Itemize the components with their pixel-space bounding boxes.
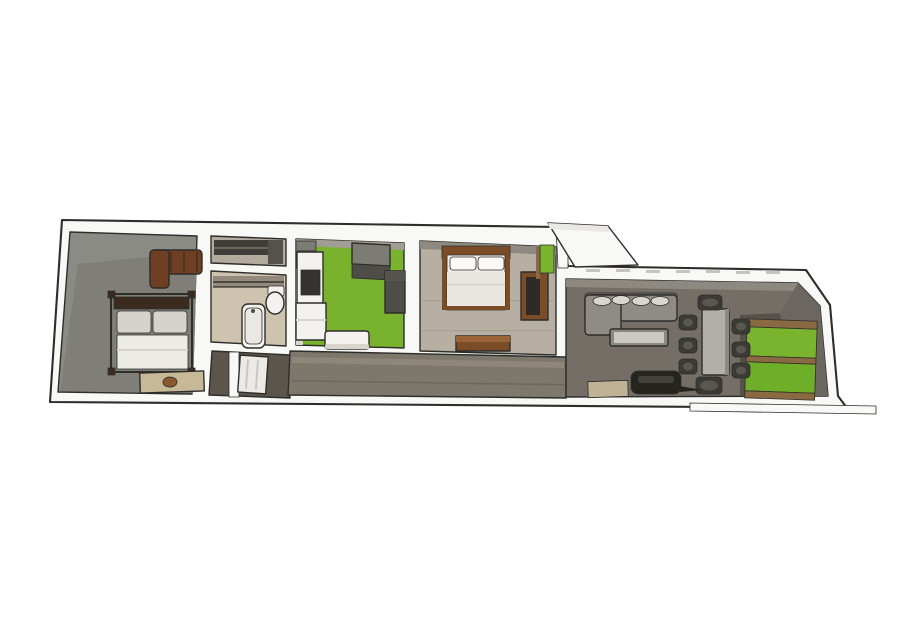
kitchen-white-cabinet [296, 303, 326, 340]
bed2-pillow [478, 257, 504, 270]
leather-sofa-chaise [150, 250, 169, 288]
bedroom-bench-top [456, 336, 510, 342]
bed2-rail [505, 257, 510, 310]
bed-post [108, 368, 115, 375]
kitchen-tall-unit-top [385, 271, 405, 281]
cooktop [301, 270, 320, 295]
chair-seat [683, 319, 693, 327]
chair-seat [702, 299, 718, 307]
corridor [288, 351, 566, 398]
master-bench [140, 371, 205, 393]
chair-seat [700, 381, 718, 391]
skylight-dash [676, 270, 690, 273]
bed-pillow [117, 311, 151, 333]
dining-table-side [725, 309, 729, 375]
skylight-dash [616, 269, 630, 272]
room-master-bedroom [58, 232, 204, 394]
green-end-windows [745, 319, 818, 400]
toilet [266, 292, 284, 314]
wardrobe-panel [526, 277, 540, 315]
doormat [588, 380, 629, 397]
dining-table [702, 309, 729, 375]
chair-seat [683, 363, 693, 371]
sofa-tuft [183, 252, 185, 272]
refrigerator-top [352, 243, 390, 266]
entry-hall [209, 351, 290, 398]
fireplace-inner [638, 376, 674, 383]
bathtub-drain [251, 309, 255, 313]
kitchen-table-shadow [325, 344, 369, 349]
green-window [746, 327, 817, 358]
bedroom-plank-line [422, 330, 554, 331]
doormat-group [588, 380, 629, 397]
chair-seat [736, 346, 746, 354]
skylight-dash [766, 271, 780, 274]
sofa-tuft [196, 252, 198, 272]
skylight-dash [706, 270, 720, 273]
green-door [540, 245, 554, 273]
green-window [745, 362, 816, 393]
bathroom-rail [213, 281, 284, 283]
bathtub-basin [245, 308, 262, 344]
floorplan-rendering [0, 0, 900, 636]
sofa-cushion [593, 297, 611, 306]
entry-door [238, 355, 269, 394]
sofa-cushion [632, 297, 650, 306]
skylight-dash [736, 271, 750, 274]
bed-headboard [114, 297, 189, 309]
room-kitchen [296, 239, 405, 349]
kitchen-cabinet-line [296, 319, 326, 321]
entry-door-panel [238, 355, 269, 394]
chair-seat [683, 342, 693, 350]
bed2-pillow [450, 257, 476, 270]
room-living-dining [566, 269, 828, 400]
chair-seat [736, 367, 746, 375]
bed-duvet-fold [117, 349, 188, 351]
bed2-duvet-fold [447, 284, 505, 286]
skylight-dash [586, 269, 600, 272]
sofa-tuft [170, 252, 172, 272]
closet-side-return [268, 240, 283, 264]
bed2-footboard [442, 306, 510, 310]
bed-pillow [153, 311, 187, 333]
bed-post [108, 291, 115, 298]
room-bathroom [211, 271, 286, 348]
bench-bowl [163, 377, 177, 387]
room-bedroom [420, 241, 556, 355]
bed-post [188, 291, 195, 298]
bed-duvet [117, 335, 188, 369]
chair-seat [736, 323, 746, 331]
bed2-rail [442, 257, 447, 310]
green-door-frame [536, 247, 540, 279]
sofa-cushion [612, 296, 630, 305]
room-closet [211, 236, 286, 266]
coffee-table-top [614, 332, 664, 343]
bed2-duvet [447, 272, 505, 310]
skylight-dash [646, 270, 660, 273]
sofa-cushion [651, 297, 669, 306]
